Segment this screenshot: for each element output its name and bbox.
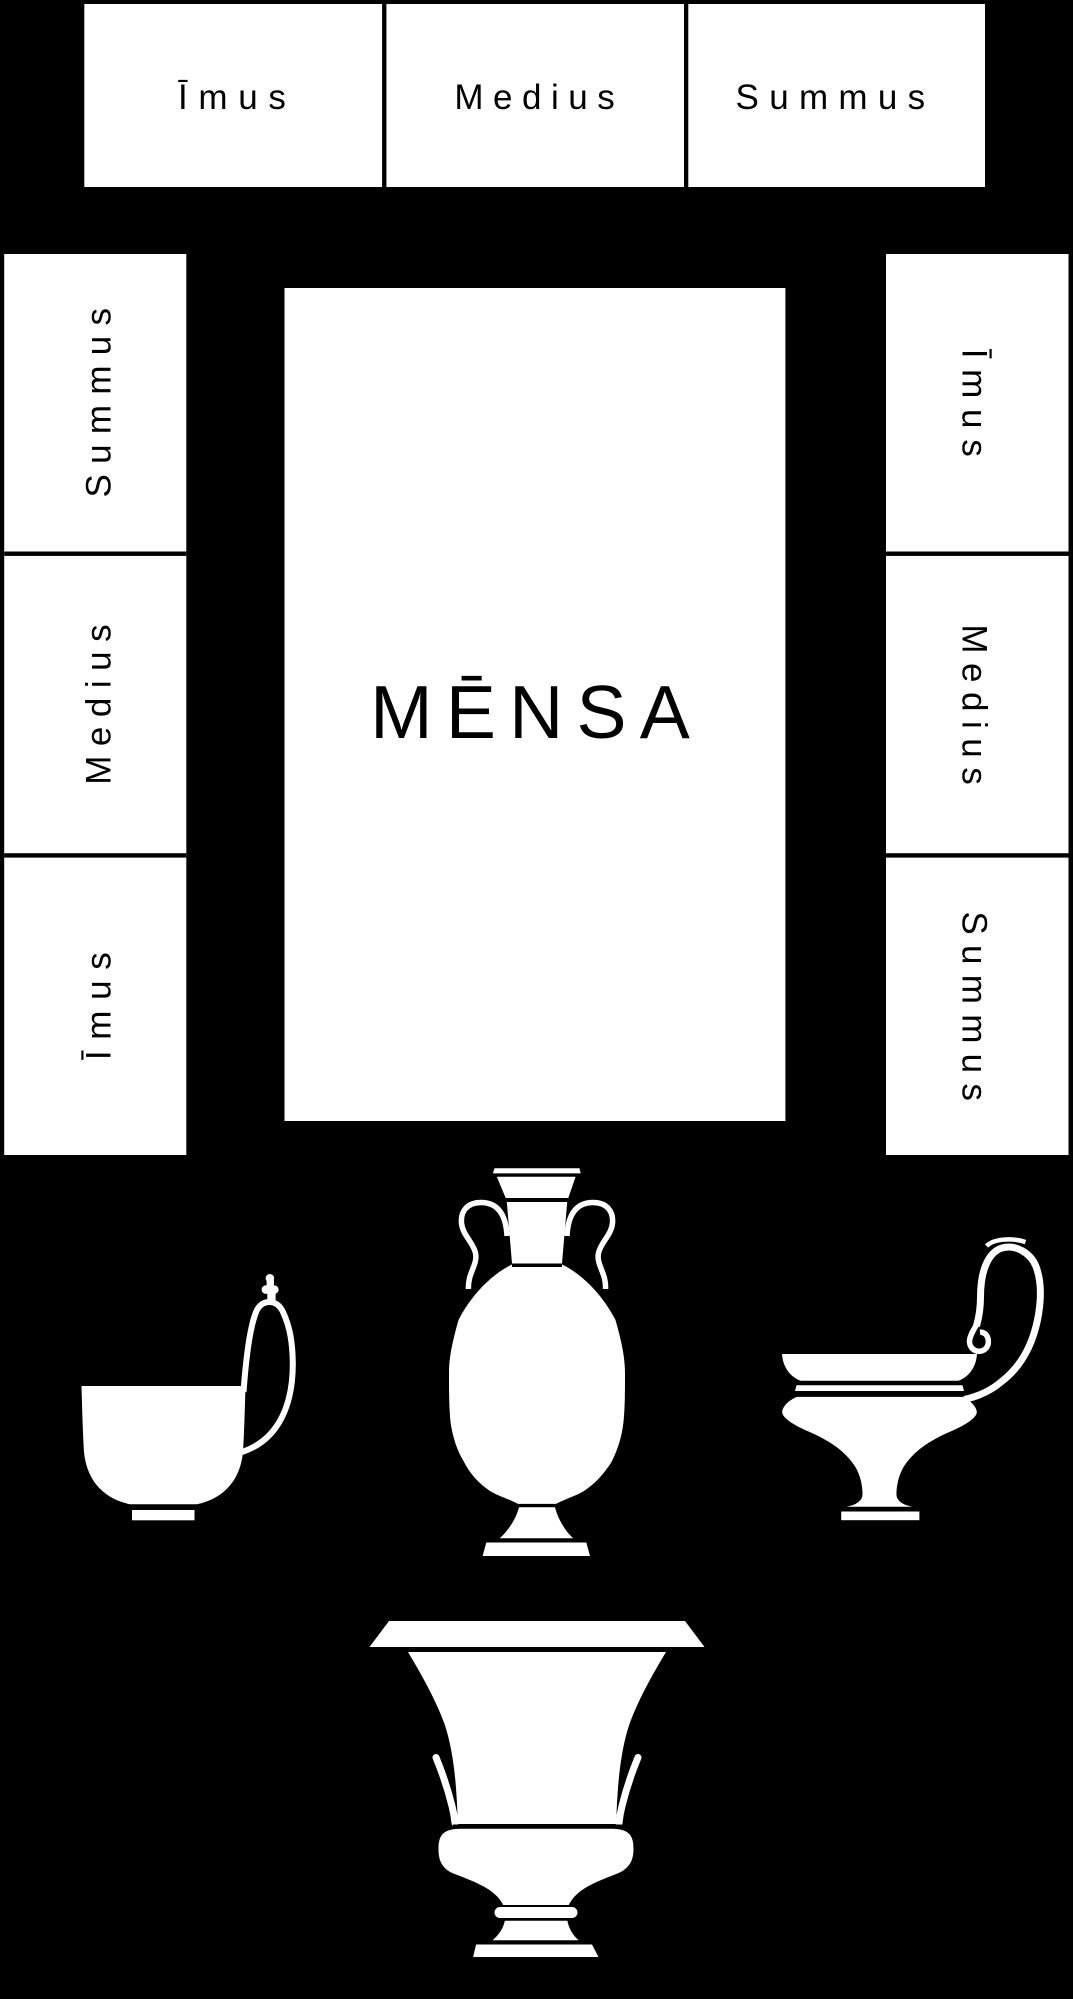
svg-text:Medius: Medius	[80, 615, 119, 785]
svg-text:Medius: Medius	[955, 624, 994, 794]
svg-text:Īmus: Īmus	[178, 78, 297, 117]
svg-text:Īmus: Īmus	[80, 941, 119, 1060]
svg-text:Summus: Summus	[955, 911, 994, 1111]
svg-text:MĒNSA: MĒNSA	[370, 670, 703, 754]
svg-text:Summus: Summus	[736, 78, 936, 117]
svg-text:Īmus: Īmus	[955, 349, 994, 468]
svg-text:Summus: Summus	[80, 298, 119, 498]
svg-text:Medius: Medius	[454, 78, 624, 117]
